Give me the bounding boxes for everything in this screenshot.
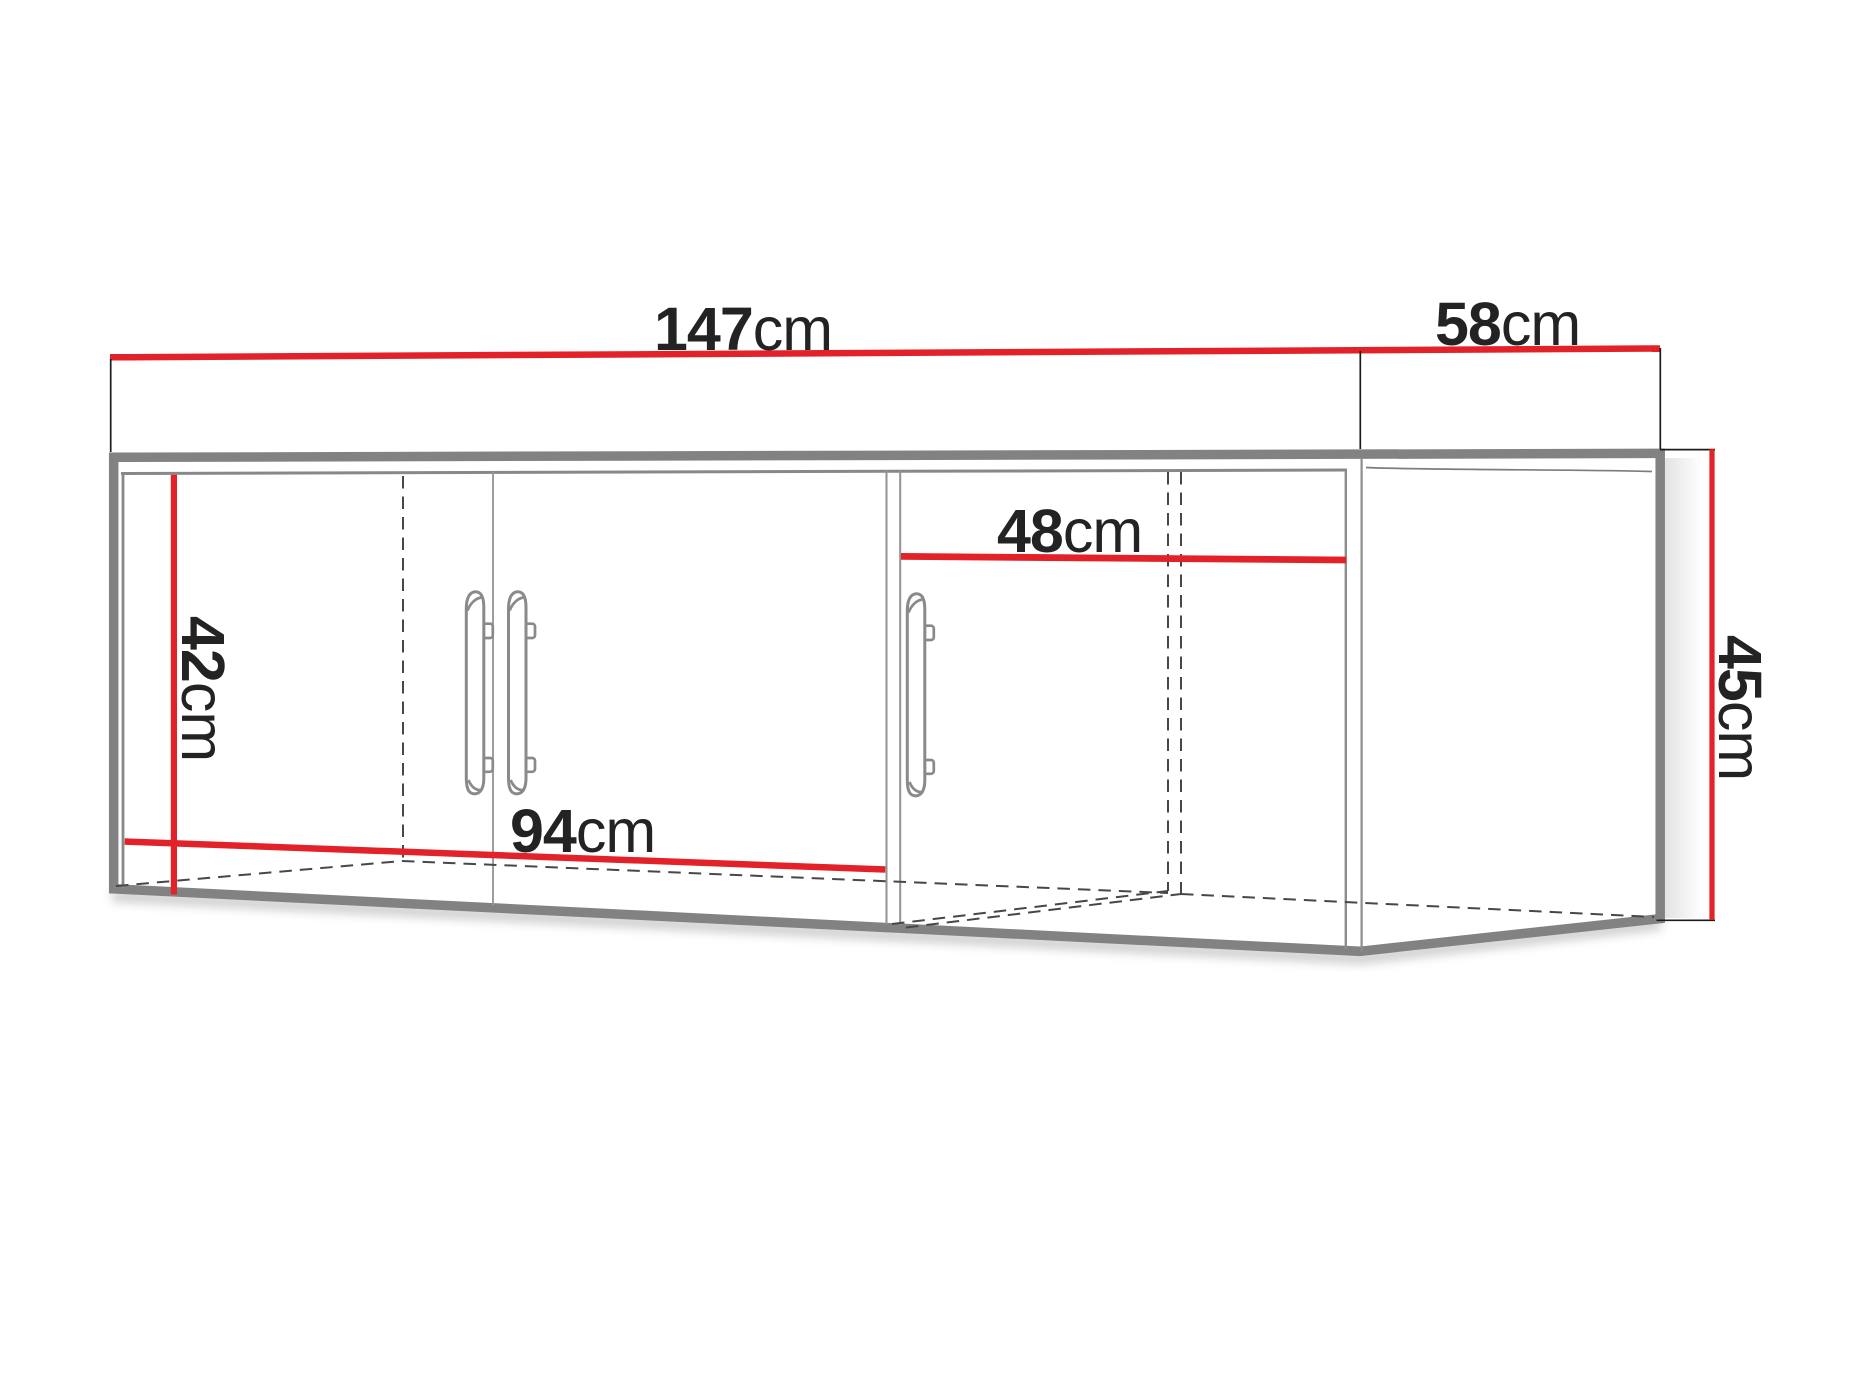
- svg-text:45cm: 45cm: [1706, 635, 1774, 780]
- svg-text:147cm: 147cm: [654, 295, 832, 363]
- svg-text:42cm: 42cm: [169, 616, 237, 761]
- svg-text:94cm: 94cm: [510, 797, 655, 865]
- svg-text:58cm: 58cm: [1435, 290, 1580, 358]
- svg-text:48cm: 48cm: [997, 497, 1142, 565]
